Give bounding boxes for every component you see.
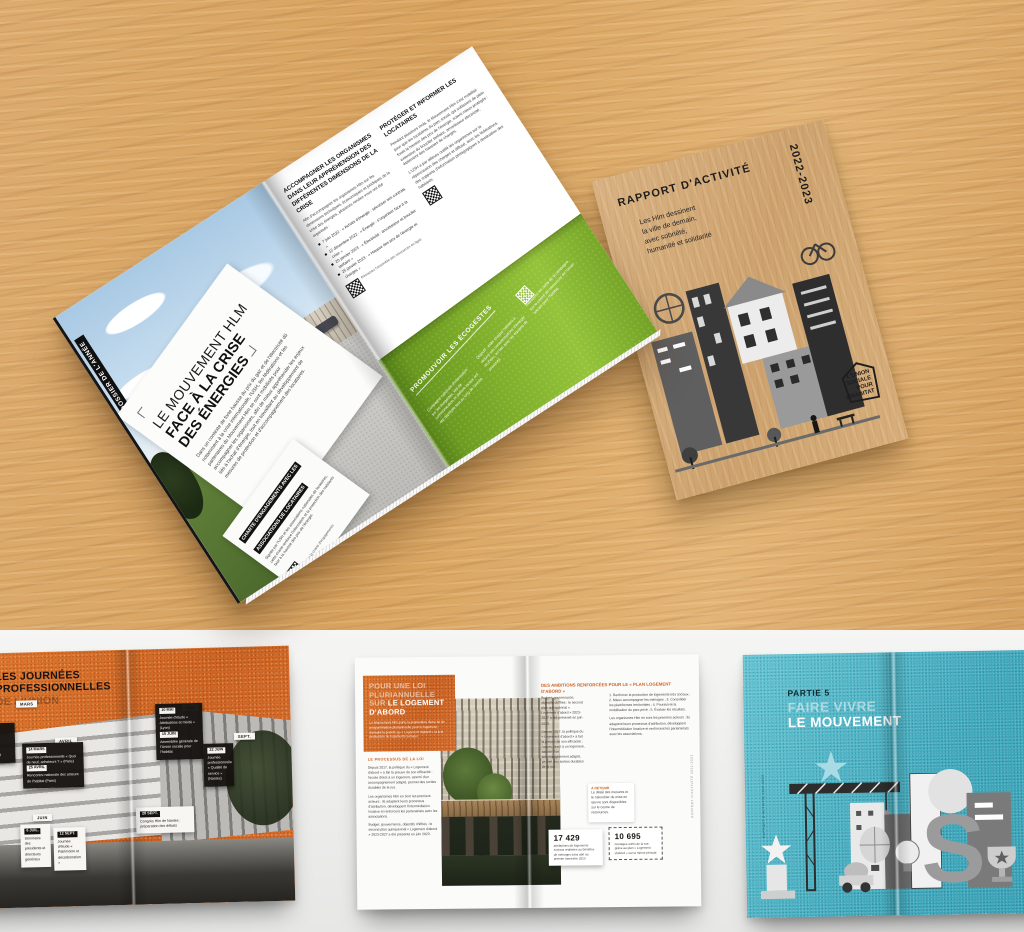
event-text: Journée professionnelle « Qualité de ser…: [207, 755, 230, 783]
qr-code: [422, 185, 443, 206]
stat-value: 17 429: [554, 833, 598, 842]
event-date: 28 SEPT.: [140, 811, 160, 817]
event-text: Séminaire des présidents et directeurs g…: [25, 836, 48, 864]
headline-text: SUR: [369, 699, 388, 708]
timeline-black-box: 22 JUIN Journée professionnelle « Qualit…: [203, 743, 234, 786]
body-paragraph: Les organismes Hlm en sont les premiers …: [368, 793, 439, 819]
city-buildings: [641, 254, 865, 455]
event-text: Journée d'étude « Patrimoine et décarbon…: [58, 839, 83, 867]
left-column-text: Depuis 2017, la politique du « Logement …: [368, 765, 440, 884]
quote-close-mark: [245, 345, 257, 357]
print-mockup-scene: RAPPORT D'ACTIVITÉ 2022-2023 Les Hlm des…: [0, 0, 1024, 932]
cover-years: 2022-2023: [787, 143, 815, 206]
event-date: 6 JUIL.: [24, 828, 41, 834]
event-date: 25 AVRIL: [27, 765, 47, 771]
event-text: Rencontre nationale des acteurs de l'hab…: [27, 772, 80, 784]
bicycle-icon: [799, 240, 836, 266]
body-paragraph: Depuis 2017, la politique du « Logement …: [541, 729, 585, 770]
body-paragraph: Les organismes Hlm en sont les premiers …: [609, 716, 691, 737]
section-heading: LE PROCESSUS DE LA LOI: [368, 757, 424, 762]
floor-spread-mouvement: PARTIE 5 FAIRE VIVRE LE MOUVEMENT: [743, 649, 1024, 918]
timeline-white-box: 28 SEPT. Congrès Hlm de Nantes : prépara…: [136, 806, 195, 834]
headline-text-bold: LE LOGEMENT: [388, 698, 444, 708]
stat-value: 10 695: [615, 832, 657, 841]
stat-label: ménages sortis de la rue grâce au plan «…: [615, 842, 657, 856]
month-chip: MARS: [16, 700, 38, 708]
stat-box: 10 695 ménages sortis de la rue grâce au…: [608, 827, 662, 861]
timeline-white-box: 6 JUIL. Séminaire des présidents et dire…: [20, 824, 51, 867]
event-date: 22 JUIN: [207, 747, 225, 753]
event-text: Assemblée générale de l'Union sociale po…: [160, 739, 199, 756]
logement-headline-block: POUR UNE LOI PLURIANNUELLE SUR LE LOGEME…: [363, 675, 456, 752]
timeline-black-box: 31 JANV. Vœux de l'Union aux partenaires…: [0, 723, 16, 764]
cover-title: RAPPORT D'ACTIVITÉ: [616, 162, 752, 209]
event-text: Journée d'étude « Attributions et mixité…: [159, 715, 198, 732]
floor-spread-logement: POUR UNE LOI PLURIANNUELLE SUR LE LOGEME…: [355, 654, 702, 910]
right-column-1: Budget, gouvernance, objectifs chiffrés …: [541, 695, 587, 845]
timeline-white-box: 12 SEPT. Journée d'étude « Patrimoine et…: [53, 827, 86, 870]
event-text: Congrès Hlm de Nantes : préparation des …: [140, 818, 190, 830]
body-paragraph: Budget, gouvernance, objectifs chiffrés …: [368, 822, 439, 838]
month-chip: SEPT.: [234, 733, 255, 741]
water: [442, 855, 561, 886]
balloon-icon: [652, 291, 687, 326]
quote-open-mark: [137, 406, 149, 418]
partie-label: PARTIE 5: [787, 687, 830, 698]
timeline-black-box: 14 MARS Journée professionnelle « Quoi d…: [22, 742, 84, 789]
month-chip: JUIN: [33, 814, 52, 821]
event-date: 14 MARS: [26, 747, 47, 753]
stat-label: attributions de logements sociaux réalis…: [554, 843, 598, 861]
note-box: À RETENIR Le détail des mesures et le ca…: [588, 783, 634, 822]
event-date: 12 SEPT.: [57, 831, 77, 837]
body-paragraph: Depuis 2017, la politique du « Logement …: [368, 765, 439, 791]
event-text: Journée professionnelle « Quoi de neuf, …: [26, 754, 79, 766]
page-edge-text: RAPPORT D'ACTIVITÉ 2022-2023: [690, 754, 695, 818]
body-paragraph: Budget, gouvernance, objectifs chiffrés …: [541, 695, 585, 726]
event-text: Comité exécutif de l'USH: [0, 753, 11, 760]
stars: [758, 751, 849, 899]
stat-box: 17 429 attributions de logements sociaux…: [549, 829, 603, 866]
letter-s-shape: S: [920, 795, 986, 903]
event-text: Vœux de l'Union aux partenaires: [0, 735, 11, 747]
floor-spread-journees: LES JOURNÉES PROFESSIONNELLES DE L'UNION…: [0, 646, 295, 910]
qr-code: [345, 278, 366, 299]
mouvement-title-bold: LE MOUVEMENT: [788, 713, 902, 730]
right-column-2: 1. Renforcer la production de logements …: [609, 692, 692, 779]
movement-illustration: S: [752, 737, 1024, 911]
mouvement-title-light: FAIRE VIVRE: [788, 699, 877, 716]
note-body: Le détail des mesures et le calendrier d…: [591, 790, 631, 816]
timeline-black-box: 10 MAI Journée d'étude « Attributions et…: [155, 703, 203, 760]
event-date: 15 JUIN: [160, 731, 178, 737]
green-panel-text: Retrouvez les outils de la campagne sur …: [525, 258, 585, 320]
headline-intro: Le Mouvement Hlm porte la proposition d'…: [369, 720, 447, 740]
body-paragraph: 1. Renforcer la production de logements …: [609, 692, 691, 713]
headline-line: D'ABORD: [369, 707, 449, 716]
event-date: 10 MAI: [159, 708, 175, 714]
